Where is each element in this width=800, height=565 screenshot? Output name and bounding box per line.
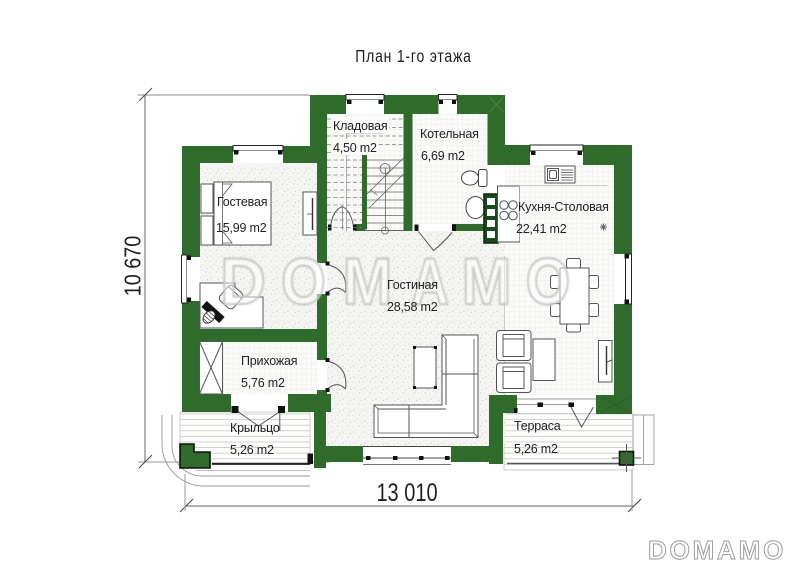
svg-text:Кладовая: Кладовая [333, 119, 387, 133]
svg-text:O: O [526, 245, 571, 319]
svg-text:Гостиная: Гостиная [387, 278, 438, 292]
svg-text:Крыльцо: Крыльцо [230, 421, 280, 435]
svg-text:Терраса: Терраса [514, 419, 561, 433]
svg-text:M: M [343, 245, 392, 319]
svg-text:15,99 m2: 15,99 m2 [216, 221, 267, 235]
svg-text:Прихожая: Прихожая [241, 354, 297, 368]
svg-text:6,69 m2: 6,69 m2 [421, 149, 465, 163]
svg-text:План 1-го этажа: План 1-го этажа [355, 48, 471, 67]
svg-text:5,76 m2: 5,76 m2 [241, 376, 285, 390]
svg-text:22,41 m2: 22,41 m2 [516, 222, 567, 236]
svg-text:Гостевая: Гостевая [217, 195, 267, 209]
svg-text:10 670: 10 670 [120, 236, 146, 297]
svg-text:5,26 m2: 5,26 m2 [230, 443, 274, 457]
svg-text:M: M [462, 245, 511, 319]
svg-text:13 010: 13 010 [376, 479, 437, 507]
svg-text:D: D [220, 244, 266, 318]
svg-text:28,58 m2: 28,58 m2 [387, 300, 438, 314]
svg-text:Кухня-Столовая: Кухня-Столовая [518, 200, 609, 214]
svg-text:4,50 m2: 4,50 m2 [333, 141, 377, 155]
svg-text:DOMAMO: DOMAMO [648, 535, 786, 565]
svg-text:5,26 m2: 5,26 m2 [514, 442, 558, 456]
svg-text:Котельная: Котельная [420, 127, 479, 141]
svg-text:O: O [281, 245, 326, 319]
